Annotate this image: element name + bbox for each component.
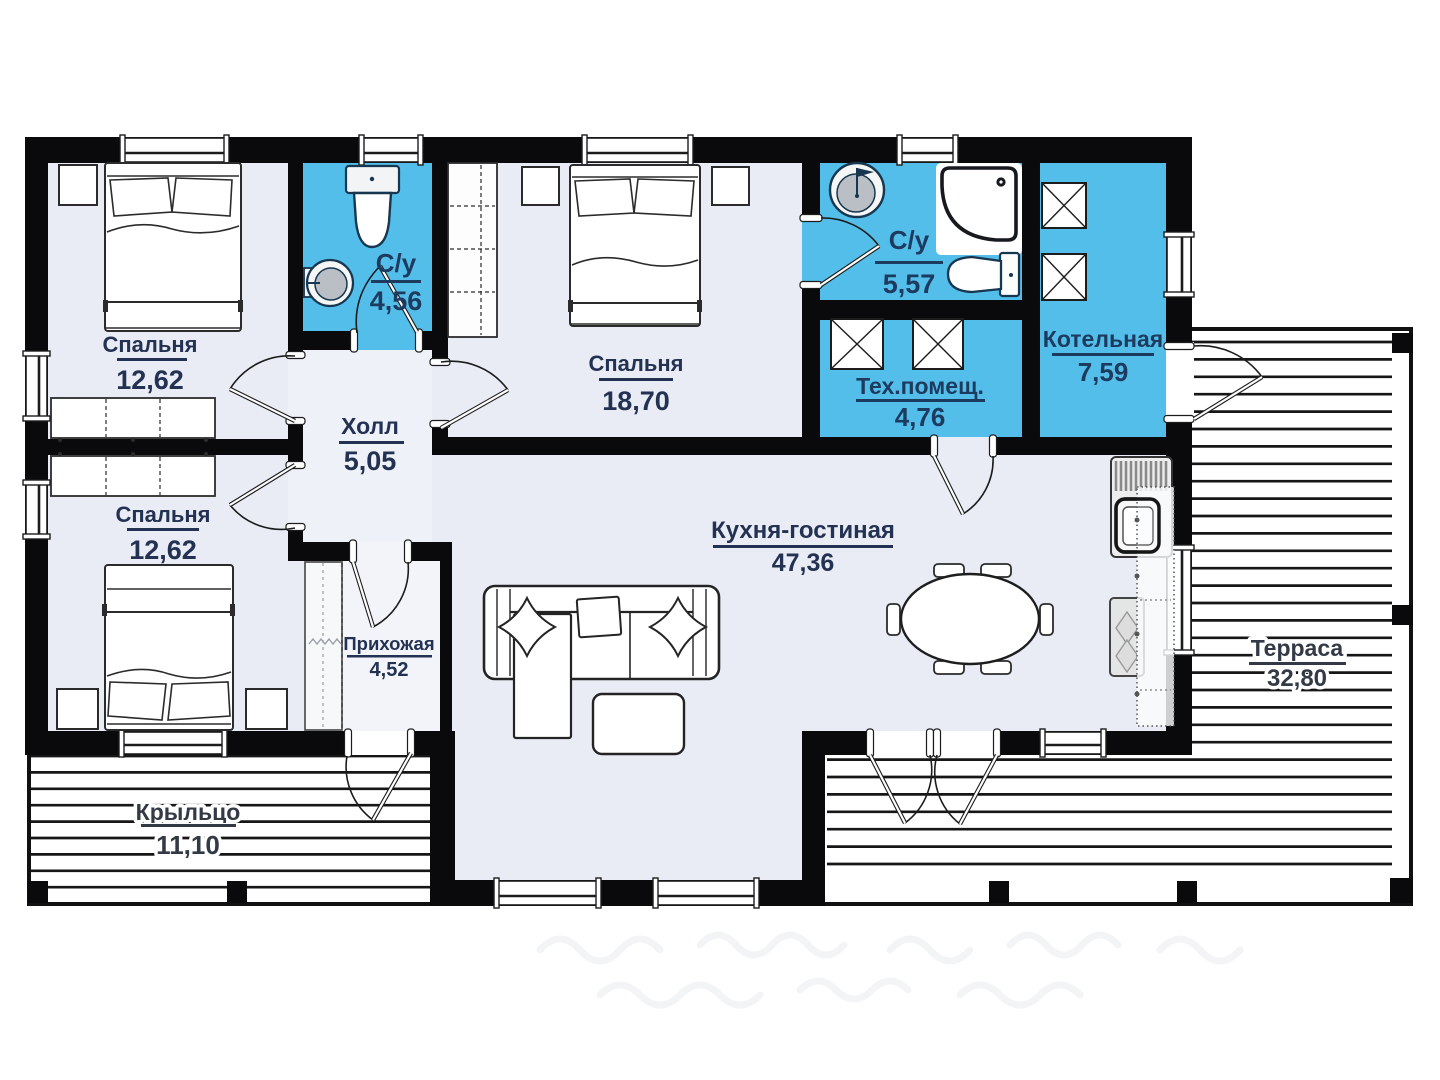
svg-text:Крыльцо: Крыльцо (136, 799, 241, 825)
svg-text:С/у: С/у (376, 248, 417, 278)
svg-text:Спальня: Спальня (102, 332, 197, 357)
svg-text:4,56: 4,56 (370, 286, 423, 316)
svg-text:Кухня-гостиная: Кухня-гостиная (711, 517, 895, 544)
svg-text:18,70: 18,70 (602, 386, 670, 416)
svg-text:Холл: Холл (341, 413, 399, 439)
svg-text:Прихожая: Прихожая (343, 633, 434, 654)
svg-text:Котельная: Котельная (1043, 326, 1163, 352)
svg-text:11,10: 11,10 (156, 830, 220, 860)
svg-text:7,59: 7,59 (1078, 357, 1129, 387)
svg-text:С/у: С/у (889, 225, 930, 255)
svg-text:32,80: 32,80 (1267, 665, 1327, 692)
svg-text:Спальня: Спальня (115, 502, 210, 527)
svg-text:12,62: 12,62 (116, 365, 184, 395)
svg-text:Тех.помещ.: Тех.помещ. (856, 373, 984, 399)
svg-text:47,36: 47,36 (772, 549, 835, 577)
svg-text:Терраса: Терраса (1251, 635, 1344, 661)
svg-text:12,62: 12,62 (129, 535, 197, 565)
svg-text:5,57: 5,57 (883, 269, 936, 299)
svg-text:Спальня: Спальня (588, 351, 683, 376)
svg-text:5,05: 5,05 (344, 446, 397, 476)
svg-text:4,52: 4,52 (370, 659, 409, 681)
svg-text:4,76: 4,76 (895, 402, 946, 432)
